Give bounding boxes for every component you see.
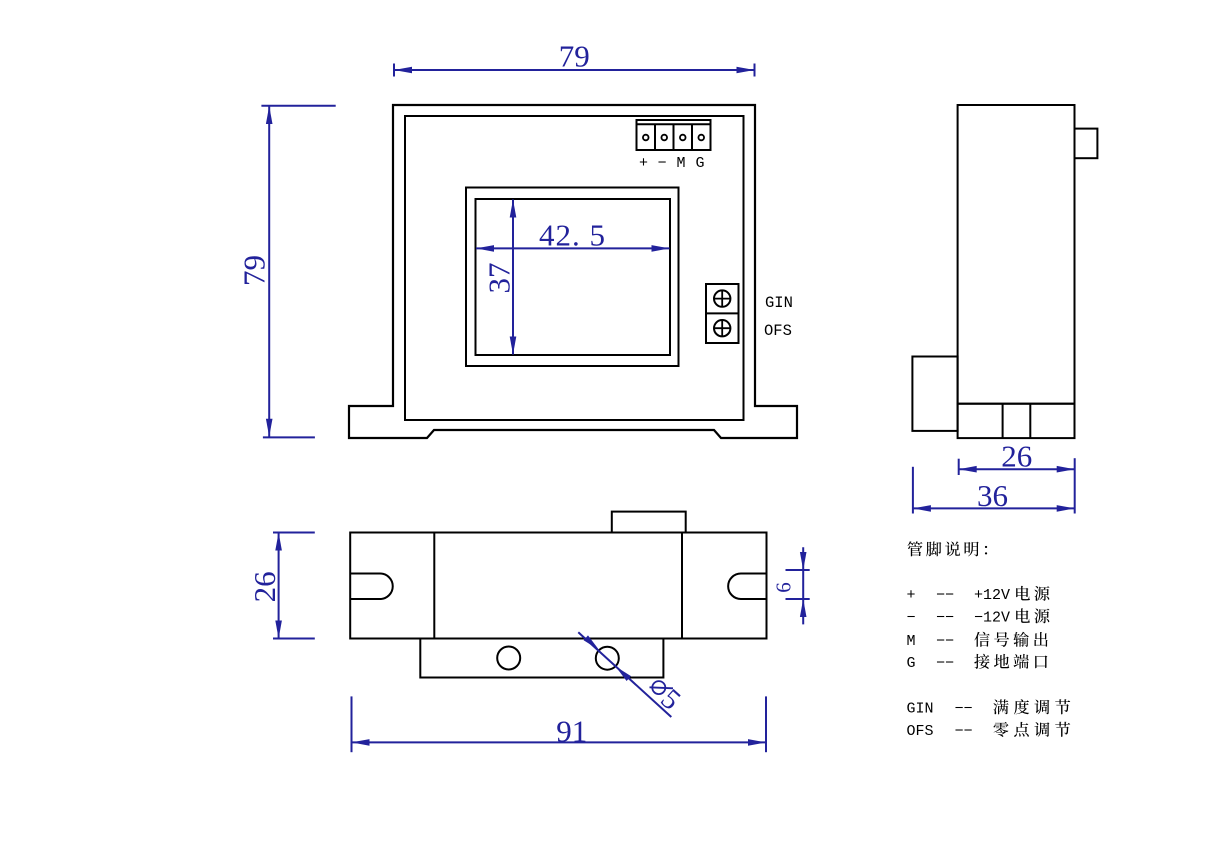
svg-text:91: 91: [556, 714, 587, 749]
svg-text:−: −: [907, 610, 916, 627]
svg-text:M: M: [676, 155, 685, 172]
svg-text:79: 79: [236, 255, 271, 286]
svg-text:−12V: −12V: [974, 610, 1010, 627]
svg-text:−−: −−: [936, 655, 954, 672]
svg-text:37: 37: [482, 263, 517, 294]
svg-text:M: M: [907, 633, 916, 650]
svg-text:26: 26: [1001, 439, 1032, 474]
svg-text:GIN: GIN: [765, 294, 793, 312]
svg-text:−−: −−: [936, 633, 954, 650]
svg-text:42. 5: 42. 5: [539, 218, 606, 253]
svg-text:−−: −−: [955, 701, 973, 718]
svg-text:GIN: GIN: [907, 701, 934, 718]
svg-text:+12V: +12V: [974, 587, 1010, 604]
svg-text:36: 36: [977, 478, 1008, 513]
svg-text:6: 6: [772, 582, 796, 593]
svg-text:G: G: [695, 155, 704, 172]
svg-text:OFS: OFS: [764, 322, 792, 340]
svg-text:−: −: [657, 155, 666, 172]
svg-text:26: 26: [247, 571, 282, 602]
svg-text:79: 79: [559, 39, 590, 74]
svg-text:OFS: OFS: [907, 723, 934, 740]
svg-text:−−: −−: [955, 723, 973, 740]
svg-text:−−: −−: [936, 587, 954, 604]
svg-text:G: G: [907, 655, 916, 672]
svg-text:+: +: [639, 155, 648, 172]
svg-text:+: +: [907, 587, 916, 604]
svg-text:−−: −−: [936, 610, 954, 627]
